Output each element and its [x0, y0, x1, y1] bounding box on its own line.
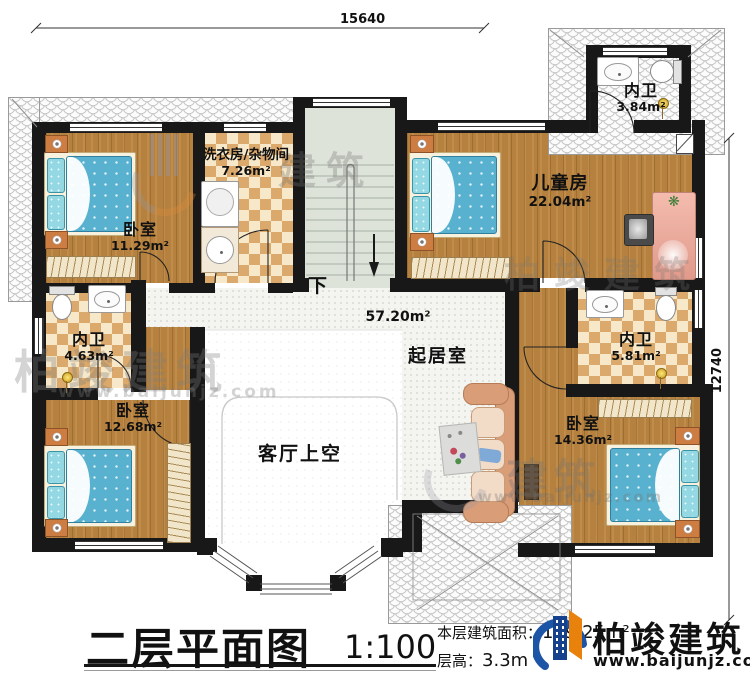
wall	[390, 278, 407, 292]
wall	[169, 283, 205, 293]
bay-post	[197, 538, 213, 555]
bay-post	[381, 538, 403, 557]
watermark-url: www.baijunjz.com	[58, 382, 280, 402]
room-name: 起居室	[408, 346, 468, 367]
watermark-text: 建筑	[278, 140, 374, 195]
room-name: 内卫	[64, 331, 113, 349]
stair-down-label: 下	[308, 271, 327, 298]
mattress	[610, 448, 680, 522]
nightstand	[45, 428, 68, 446]
washer-drum	[206, 188, 234, 216]
room-name: 客厅上空	[258, 443, 342, 465]
room-area: 3.84m²	[616, 100, 665, 114]
window	[575, 545, 655, 554]
wall	[700, 397, 713, 557]
room-label-children: 儿童房 22.04m²	[529, 174, 592, 210]
watermark-url: www.baijunjz.com	[478, 488, 663, 506]
floor-plan-page: ❋	[0, 0, 750, 684]
dimension-top: 15640	[340, 12, 385, 27]
closet	[598, 399, 692, 418]
room-label-laundry: 洗衣房/杂物间 7.26m²	[203, 148, 289, 178]
living-area-label: 57.20m²	[365, 307, 430, 325]
window	[75, 541, 163, 550]
closet	[167, 443, 191, 543]
room-area: 7.26m²	[203, 164, 289, 178]
floor-height-line: 层高：3.3m	[437, 650, 528, 671]
room-label-bath-top: 内卫 3.84m²	[616, 82, 665, 115]
floor-height-value: 3.3m	[482, 650, 528, 671]
room-name: 卧室	[104, 402, 162, 420]
pillow	[47, 486, 65, 519]
title-underline	[84, 664, 436, 667]
light-symbol	[656, 368, 667, 379]
bay-post	[246, 575, 262, 591]
nightstand	[410, 135, 434, 153]
wall	[205, 283, 215, 293]
dot	[447, 434, 451, 438]
sheet-title: 二层平面图	[86, 615, 311, 677]
title-underline-thin	[84, 670, 436, 671]
room-area: 14.36m²	[554, 433, 612, 447]
window	[70, 123, 162, 132]
pillow	[47, 195, 65, 230]
company-url: www.baijunjz.com	[593, 651, 750, 670]
toilet-bowl	[52, 294, 72, 320]
staircase-floor	[305, 108, 395, 288]
nightstand	[410, 233, 434, 251]
room-label-bedroom-tl: 卧室 11.29m²	[111, 221, 169, 254]
monitor-screen	[629, 219, 647, 239]
pillow	[47, 158, 65, 193]
dimension-right: 12740	[710, 348, 725, 393]
nightstand	[45, 135, 68, 153]
pillow	[681, 485, 699, 518]
sink	[88, 285, 126, 313]
room-area: 12.68m²	[104, 420, 162, 434]
void-floor	[205, 330, 402, 546]
closet	[411, 257, 510, 279]
room-area: 4.63m²	[64, 349, 113, 363]
plant: ❋	[668, 194, 680, 210]
room-name: 卧室	[111, 221, 169, 239]
room-name: 洗衣房/杂物间	[203, 148, 289, 164]
room-area: 5.81m²	[611, 349, 660, 363]
window	[603, 47, 667, 56]
window	[438, 122, 545, 131]
closet	[46, 256, 136, 278]
room-label-bath-right: 内卫 5.81m²	[611, 331, 660, 364]
wall	[566, 384, 713, 397]
room-label-bedroom-bl: 卧室 12.68m²	[104, 402, 162, 435]
corner-door-panel	[676, 134, 694, 154]
nightstand	[675, 520, 700, 538]
floor-area-label: 本层建筑面积：	[437, 624, 542, 642]
wall	[293, 278, 309, 292]
bay-window-glazing	[210, 546, 382, 594]
room-area: 57.20m²	[365, 309, 430, 325]
toilet-bowl	[650, 60, 674, 83]
wall	[634, 120, 691, 133]
laundry-sink	[206, 236, 234, 264]
room-name: 儿童房	[529, 174, 592, 195]
nightstand	[675, 427, 700, 445]
room-name: 卧室	[554, 415, 612, 433]
watermark-text: 柏竣建筑	[504, 246, 704, 298]
roof-top-left-strip	[8, 97, 297, 125]
sheet-scale: 1:100	[344, 628, 436, 666]
room-label-bedroom-br: 卧室 14.36m²	[554, 415, 612, 448]
watermark-logo-building	[150, 134, 178, 176]
sofa-arm	[463, 383, 509, 405]
window	[313, 98, 390, 107]
bay-post	[330, 575, 346, 591]
wall	[402, 500, 422, 552]
pillow	[412, 158, 430, 194]
room-label-bath-left: 内卫 4.63m²	[64, 331, 113, 364]
nightstand	[45, 519, 68, 537]
pillow	[412, 196, 430, 232]
nightstand	[45, 231, 68, 249]
toilet-bowl	[656, 295, 676, 321]
window	[224, 123, 266, 132]
room-area: 11.29m²	[111, 239, 169, 253]
mattress	[431, 156, 497, 234]
room-name: 内卫	[616, 82, 665, 100]
living-name-label: 起居室	[408, 347, 468, 368]
room-area: 22.04m²	[529, 195, 592, 211]
toilet-tank	[673, 60, 682, 84]
room-name: 内卫	[611, 331, 660, 349]
void-label: 客厅上空	[258, 444, 342, 466]
pillow	[47, 451, 65, 484]
wall	[268, 283, 293, 293]
dot	[458, 431, 462, 435]
mattress	[66, 449, 132, 523]
floor-height-label: 层高：	[437, 652, 482, 670]
pillow	[681, 450, 699, 483]
